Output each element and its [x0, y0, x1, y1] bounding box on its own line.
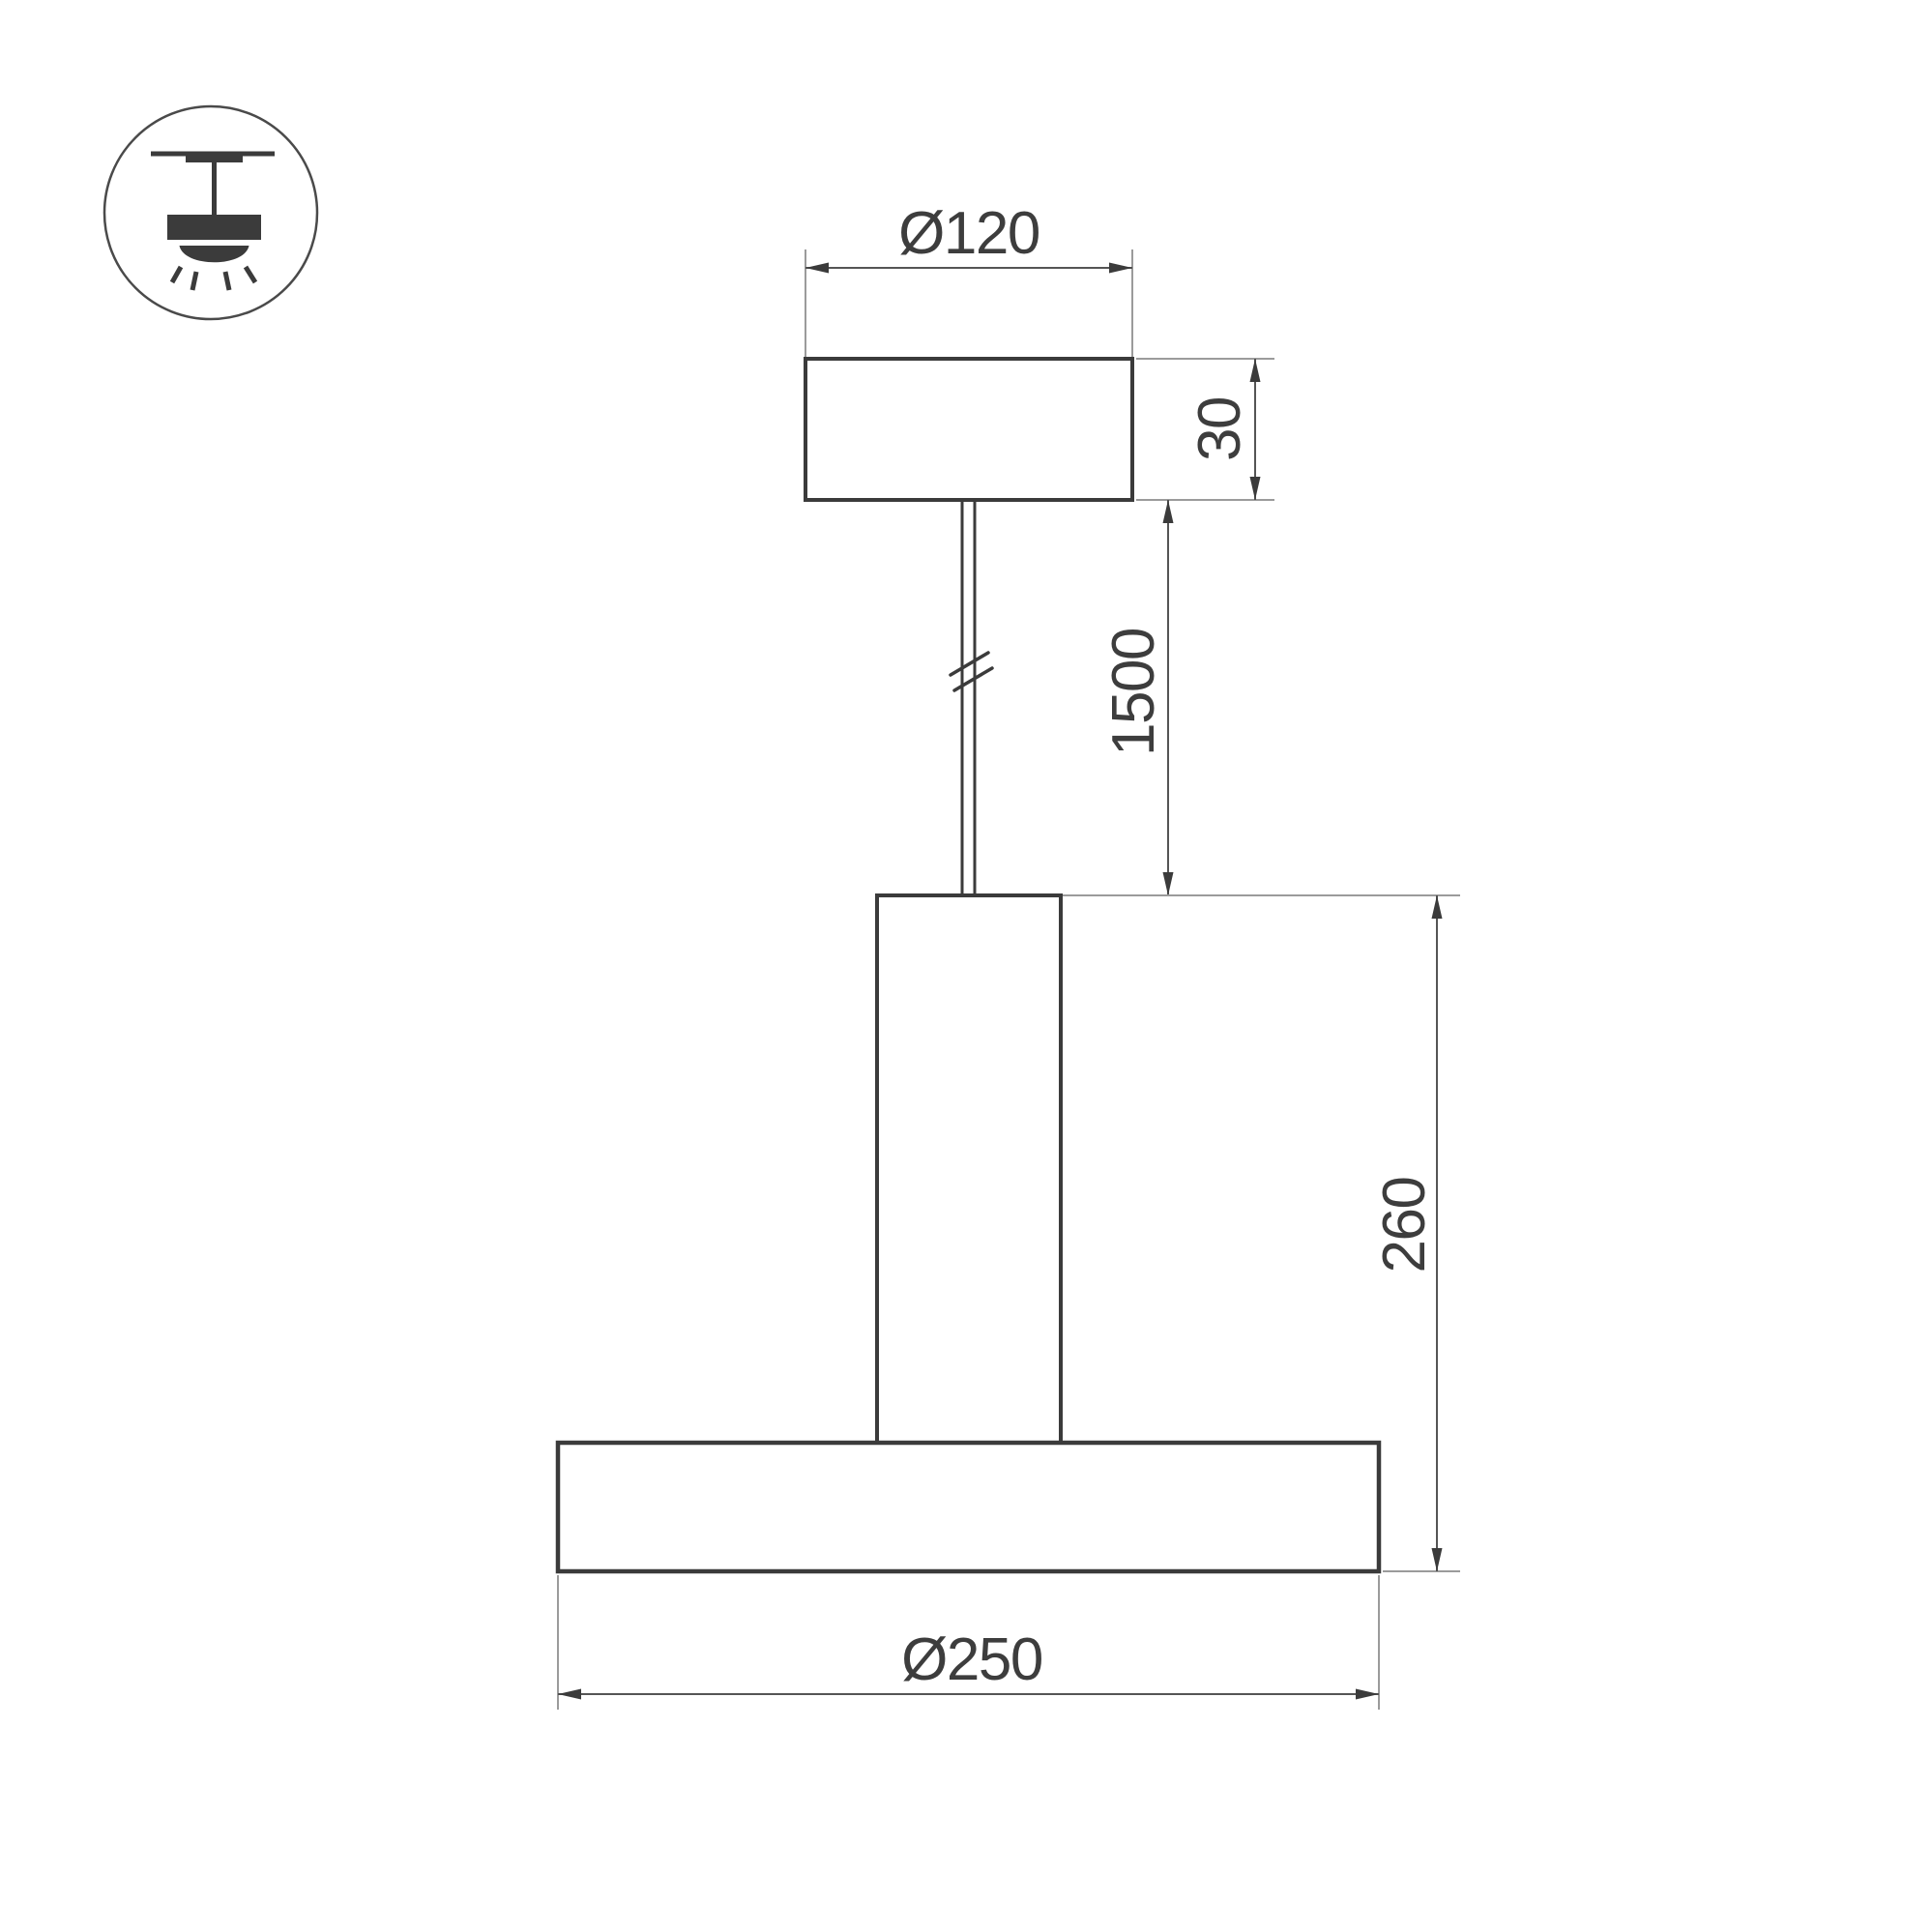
icon-light-ray [225, 272, 229, 290]
arrow-down-icon [1250, 477, 1261, 500]
wire-break-symbol [951, 653, 992, 690]
dimension-value: 1500 [1100, 629, 1167, 756]
arrow-left-icon [558, 1689, 581, 1700]
icon-light-dome [180, 246, 249, 262]
lamp-outline [558, 359, 1379, 1571]
icon-light-ray [172, 267, 181, 282]
dimension-shade-diameter: Ø250 [558, 1575, 1379, 1710]
dimension-value: Ø120 [898, 200, 1039, 267]
icon-light-ray [246, 267, 255, 282]
suspension-wire [962, 500, 975, 895]
icon-lamp-body [167, 215, 261, 240]
arrow-up-icon [1163, 500, 1174, 523]
wire-break-slash [951, 653, 988, 675]
lamp-body-outline [877, 895, 1061, 1443]
arrow-down-icon [1163, 872, 1174, 895]
dimension-canopy-diameter: Ø120 [805, 200, 1132, 357]
canopy-outline [805, 359, 1132, 500]
arrow-up-icon [1432, 895, 1443, 919]
dimension-suspension-length: 1500 [1100, 500, 1174, 895]
arrow-down-icon [1432, 1548, 1443, 1571]
icon-circle-border [104, 106, 317, 319]
icon-mount-plate [186, 155, 243, 162]
arrow-left-icon [805, 263, 829, 274]
pendant-lamp-icon [104, 106, 317, 319]
arrow-right-icon [1356, 1689, 1379, 1700]
icon-light-ray [192, 272, 196, 290]
dimension-value: 260 [1371, 1178, 1438, 1273]
pendant-lamp-dimension-drawing: Ø120 30 1500 260 [0, 0, 1932, 1932]
dimension-fixture-height: 260 [1063, 895, 1460, 1571]
dimension-value: Ø250 [901, 1626, 1042, 1693]
dimension-canopy-height: 30 [1136, 359, 1274, 500]
technical-drawing-page: Ø120 30 1500 260 [0, 0, 1932, 1932]
dimension-value: 30 [1186, 397, 1253, 461]
arrow-up-icon [1250, 359, 1261, 382]
lamp-shade-outline [558, 1443, 1379, 1571]
icon-light-rays [172, 267, 255, 290]
arrow-right-icon [1109, 263, 1132, 274]
